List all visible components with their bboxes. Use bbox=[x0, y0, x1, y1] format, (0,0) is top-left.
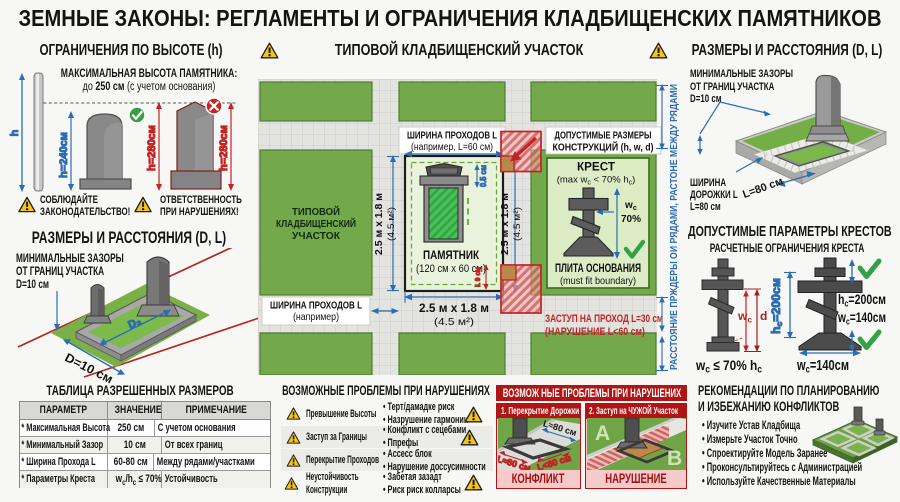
svg-text:h=240см: h=240см bbox=[58, 132, 70, 178]
svg-text:d: d bbox=[760, 309, 767, 323]
svg-text:wc=140см: wc=140см bbox=[796, 358, 849, 376]
svg-text:(must fit boundary): (must fit boundary) bbox=[560, 275, 636, 287]
svg-text:ТИПОВОЙ: ТИПОВОЙ bbox=[292, 205, 340, 218]
svg-text:КОНСТРУКЦИЙ (h, w, d): КОНСТРУКЦИЙ (h, w, d) bbox=[553, 141, 654, 154]
svg-text:(например, L=60 см): (например, L=60 см) bbox=[411, 142, 493, 153]
svg-text:(например): (например) bbox=[293, 312, 339, 323]
svg-text:hc=200см: hc=200см bbox=[838, 292, 886, 309]
svg-text:ПАМЯТНИК: ПАМЯТНИК bbox=[423, 248, 480, 262]
svg-text:ШИРИНА ПРОХОДОВ L: ШИРИНА ПРОХОДОВ L bbox=[407, 130, 497, 142]
svg-text:wc ≤ 70% hc: wc ≤ 70% hc bbox=[695, 357, 762, 376]
svg-text:wc=140см: wc=140см bbox=[837, 310, 886, 327]
svg-text:2.5 м x 1.8 м: 2.5 м x 1.8 м bbox=[373, 193, 385, 255]
svg-text:ДОПУСТИМЫЕ РАЗМЕРЫ: ДОПУСТИМЫЕ РАЗМЕРЫ bbox=[555, 130, 652, 142]
svg-text:КЛАДБИЩЕНСКИЙ: КЛАДБИЩЕНСКИЙ bbox=[276, 217, 356, 230]
svg-text:L=80 см: L=80 см bbox=[741, 175, 785, 201]
svg-text:0.5 см: 0.5 см bbox=[478, 165, 488, 187]
svg-text:B: B bbox=[667, 447, 682, 470]
svg-text:h=280см: h=280см bbox=[218, 125, 230, 171]
svg-text:h=280см: h=280см bbox=[146, 125, 158, 171]
svg-text:КРЕСТ: КРЕСТ bbox=[577, 160, 616, 174]
svg-text:ПЛИТА ОСНОВАНИЯ: ПЛИТА ОСНОВАНИЯ bbox=[555, 263, 641, 275]
svg-text:(max wc < 70% hc): (max wc < 70% hc) bbox=[557, 175, 636, 187]
svg-text:(4.5 м²): (4.5 м²) bbox=[512, 207, 523, 241]
svg-text:ЗАСТУП НА ПРОХОД L=30 см: ЗАСТУП НА ПРОХОД L=30 см bbox=[545, 313, 663, 325]
svg-text:70%: 70% bbox=[621, 214, 641, 225]
svg-text:L 9 см: L 9 см bbox=[473, 267, 482, 287]
svg-text:wc: wc bbox=[737, 309, 752, 325]
svg-text:A: A bbox=[595, 422, 610, 445]
svg-text:(4.5 м²): (4.5 м²) bbox=[434, 316, 474, 328]
svg-text:УЧАСТОК: УЧАСТОК bbox=[292, 230, 341, 242]
svg-text:(НАРУШЕНИЕ L<60 см): (НАРУШЕНИЕ L<60 см) bbox=[545, 326, 645, 338]
svg-text:hc=200см: hc=200см bbox=[771, 278, 784, 334]
svg-text:РАССТОЯНИЕ ПРЖДЕРЫ ОИ РЯДАМИ,: РАССТОЯНИЕ ПРЖДЕРЫ ОИ РЯДАМИ, РАСТОНЕ МЕ… bbox=[669, 84, 680, 370]
svg-text:h: h bbox=[9, 129, 21, 136]
svg-text:2.5 м x 1.8 м: 2.5 м x 1.8 м bbox=[499, 193, 511, 255]
svg-text:2.5 м x 1.8 м: 2.5 м x 1.8 м bbox=[419, 303, 489, 315]
svg-text:(4.5 м²): (4.5 м²) bbox=[386, 207, 397, 241]
svg-text:ШИРИНА ПРОХОДОВ L: ШИРИНА ПРОХОДОВ L bbox=[270, 300, 362, 312]
